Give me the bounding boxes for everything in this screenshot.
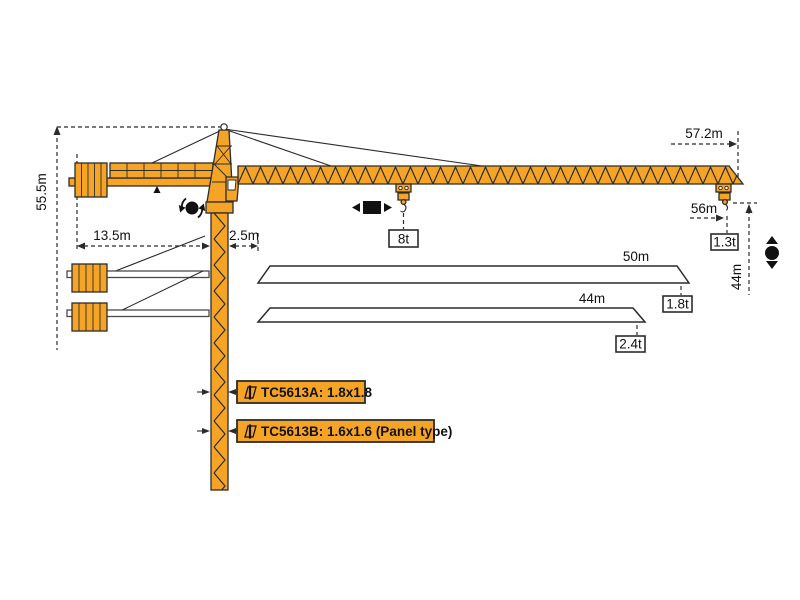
jib-44m-label: 44m bbox=[579, 291, 605, 306]
jib-44m-load-label: 2.4t bbox=[619, 337, 642, 352]
max-radius-dimension: 56m bbox=[690, 201, 724, 222]
travel-icon-body bbox=[363, 201, 381, 214]
counter-jib-option-1 bbox=[67, 236, 209, 292]
trolley-mid: 8t bbox=[389, 184, 418, 247]
slew-arc-right bbox=[198, 209, 202, 218]
jib-lattice bbox=[238, 166, 743, 184]
jib-option-44m: 44m 2.4t bbox=[258, 291, 645, 352]
slew-offset-dimension: 2.5m bbox=[229, 228, 259, 253]
counter-jib bbox=[69, 163, 213, 197]
right-arrowhead bbox=[202, 243, 210, 250]
sheave bbox=[399, 186, 402, 189]
right-arrowhead bbox=[716, 215, 724, 222]
hoist-icon bbox=[765, 236, 779, 269]
jib-length-label: 57.2m bbox=[685, 126, 723, 141]
pointer-arrow-right bbox=[228, 428, 236, 434]
pointer-arrow-left bbox=[202, 428, 210, 434]
jib-profile-50m bbox=[258, 266, 689, 283]
model-b-label: TC5613B: 1.6x1.6 (Panel type) bbox=[261, 424, 452, 439]
left-arrowhead bbox=[77, 243, 85, 250]
mast-lattice bbox=[211, 213, 228, 490]
trolley-travel-icon bbox=[352, 201, 392, 214]
main-jib bbox=[238, 166, 743, 184]
tower-mast bbox=[206, 202, 233, 490]
crane-diagram: 55.5m 13.5m 2.5m 57.2m bbox=[0, 0, 800, 600]
max-radius-label: 56m bbox=[691, 201, 717, 216]
jib-50m-load-label: 1.8t bbox=[666, 297, 689, 312]
suspension-cables bbox=[152, 129, 489, 167]
jib-cable-short bbox=[224, 129, 331, 166]
hook-travel-label: 44m bbox=[729, 264, 744, 290]
trolley-carriage bbox=[396, 184, 411, 192]
max-load-label: 8t bbox=[398, 232, 410, 247]
pointer-arrow-left bbox=[202, 389, 210, 395]
counterweight-block bbox=[72, 264, 107, 292]
sheave bbox=[405, 186, 408, 189]
right-arrow bbox=[384, 203, 392, 212]
crane-diagram-svg: 55.5m 13.5m 2.5m 57.2m bbox=[0, 0, 800, 600]
jib-50m-label: 50m bbox=[623, 249, 649, 264]
right-arrowhead bbox=[729, 141, 737, 148]
hook-block bbox=[719, 193, 730, 200]
hoist-dot bbox=[765, 246, 779, 260]
trolley-tip: 1.3t bbox=[711, 184, 738, 250]
hook-eye bbox=[723, 200, 728, 205]
slew-dot bbox=[186, 202, 199, 215]
jib-option-50m: 50m 1.8t bbox=[258, 249, 692, 312]
model-label-b: TC5613B: 1.6x1.6 (Panel type) bbox=[197, 420, 452, 442]
hook bbox=[401, 204, 406, 212]
total-height-label: 55.5m bbox=[34, 173, 49, 211]
counterweight-block bbox=[75, 163, 107, 197]
slew-offset-label: 2.5m bbox=[229, 228, 259, 243]
hook-eye bbox=[401, 200, 406, 205]
model-a-label: TC5613A: 1.8x1.8 bbox=[261, 385, 373, 400]
left-arrowhead bbox=[229, 243, 236, 249]
jib-profile-44m bbox=[258, 308, 645, 322]
operator-cab bbox=[226, 177, 239, 201]
right-arrowhead bbox=[251, 243, 258, 249]
counter-jib-cable bbox=[152, 129, 224, 163]
slew-arc-left bbox=[182, 199, 186, 208]
left-arrow bbox=[352, 203, 360, 212]
down-arrow bbox=[766, 261, 778, 269]
tip-load-label: 1.3t bbox=[713, 235, 736, 250]
counterweight-block bbox=[72, 303, 107, 331]
cab-window bbox=[228, 180, 236, 190]
slewing-unit bbox=[206, 202, 233, 213]
trolley-carriage bbox=[716, 184, 731, 192]
apex-pivot bbox=[221, 124, 227, 130]
slewing-icon bbox=[179, 199, 205, 218]
sheave bbox=[719, 186, 722, 189]
counter-jib-length-label: 13.5m bbox=[93, 228, 131, 243]
up-arrow bbox=[766, 236, 778, 244]
pointer-arrow-right bbox=[228, 389, 236, 395]
attachment-arrow bbox=[154, 186, 161, 193]
sheave bbox=[725, 186, 728, 189]
jib-cable-long bbox=[224, 129, 489, 167]
hook-block bbox=[398, 193, 409, 200]
